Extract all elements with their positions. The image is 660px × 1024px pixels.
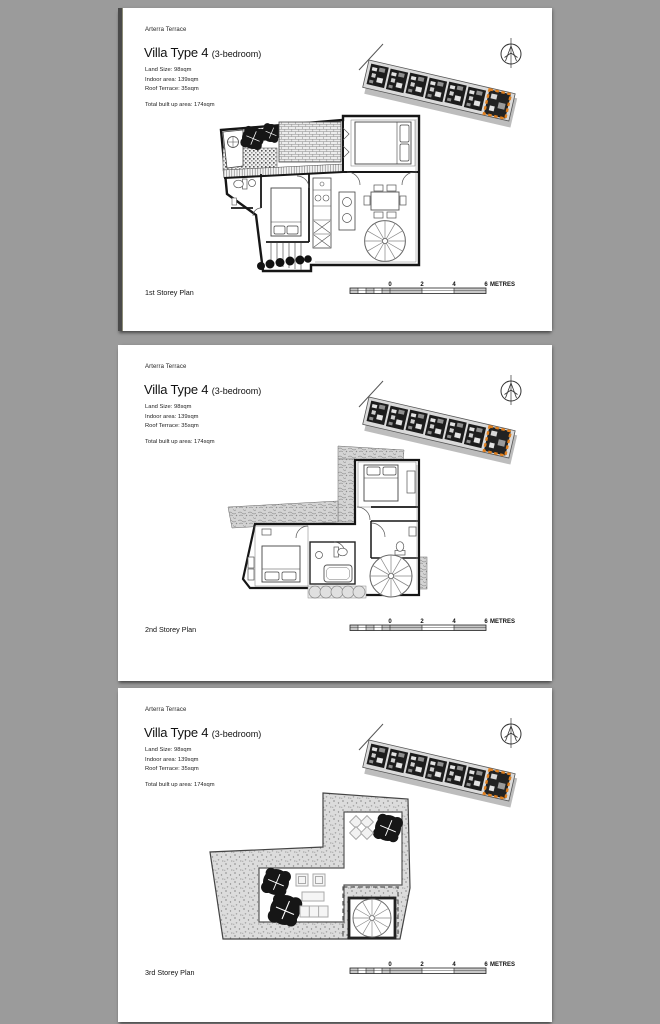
scale-unit: METRES <box>490 962 515 968</box>
wardrobe <box>248 569 254 580</box>
north-arrow-icon <box>501 718 521 748</box>
scale-segments <box>350 625 486 631</box>
project-name: Arterra Terrace <box>145 364 186 370</box>
page-title: Villa Type 4 (3-bedroom) <box>144 725 261 740</box>
floor-plan-2nd-storey <box>228 445 428 610</box>
wall-cabinet <box>262 529 271 535</box>
land-size: Land Size: 98sqm <box>145 66 199 76</box>
kitchen-counter <box>313 178 331 248</box>
document-viewer: Arterra Terrace Villa Type 4 (3-bedroom)… <box>0 0 660 1024</box>
brick-terrace <box>279 122 341 162</box>
roof-terrace: Roof Terrace: 35sqm <box>145 422 199 432</box>
basin <box>316 552 323 559</box>
bedroom-count: (3-bedroom) <box>212 386 262 396</box>
pillow <box>383 467 396 475</box>
land-size: Land Size: 98sqm <box>145 746 199 756</box>
scale-segments <box>350 968 486 974</box>
plan-page-2: Arterra Terrace Villa Type 4 (3-bedroom)… <box>118 345 552 681</box>
indoor-area: Indoor area: 139sqm <box>145 756 199 766</box>
wardrobe <box>248 557 254 568</box>
scale-tick-6: 6 <box>484 282 488 288</box>
plan-label: 3rd Storey Plan <box>145 968 195 977</box>
scale-bar: 0 2 4 6 METRES <box>346 616 518 634</box>
roof-terrace: Roof Terrace: 35sqm <box>145 765 199 775</box>
scale-bar: 0 2 4 6 METRES <box>346 959 518 977</box>
villa-type-title: Villa Type 4 <box>144 45 208 60</box>
indoor-area: Indoor area: 139sqm <box>145 413 199 423</box>
planter-pots <box>309 586 365 598</box>
total-area: Total built up area: 174sqm <box>145 102 215 108</box>
north-arrow-icon <box>501 38 521 68</box>
villa-type-title: Villa Type 4 <box>144 382 208 397</box>
land-size: Land Size: 98sqm <box>145 403 199 413</box>
hob <box>343 214 352 223</box>
scale-tick-2: 2 <box>420 962 424 968</box>
basin <box>409 527 416 536</box>
roof-terrace: Roof Terrace: 35sqm <box>145 85 199 95</box>
pillow <box>274 226 285 234</box>
pillow <box>367 467 380 475</box>
scale-tick-4: 4 <box>452 962 456 968</box>
pillow <box>265 572 279 580</box>
total-area: Total built up area: 174sqm <box>145 782 215 788</box>
scale-tick-6: 6 <box>484 619 488 625</box>
planter-box <box>223 130 243 168</box>
pillow <box>400 125 409 142</box>
scale-segments <box>350 288 486 294</box>
area-details: Land Size: 98sqm Indoor area: 139sqm Roo… <box>145 403 199 432</box>
page-title: Villa Type 4 (3-bedroom) <box>144 45 261 60</box>
pillow <box>400 144 409 161</box>
hob <box>343 198 352 207</box>
scale-unit: METRES <box>490 619 515 625</box>
spiral-staircase <box>353 899 391 937</box>
floor-plan-1st-storey <box>213 114 433 274</box>
villa-type-title: Villa Type 4 <box>144 725 208 740</box>
project-name: Arterra Terrace <box>145 27 186 33</box>
scale-tick-4: 4 <box>452 619 456 625</box>
scale-tick-0: 0 <box>388 962 392 968</box>
page-title: Villa Type 4 (3-bedroom) <box>144 382 261 397</box>
scale-tick-2: 2 <box>420 619 424 625</box>
scale-tick-2: 2 <box>420 282 424 288</box>
pillow <box>287 226 298 234</box>
desk <box>407 471 415 493</box>
stone-terrace <box>338 459 355 522</box>
total-area: Total built up area: 174sqm <box>145 439 215 445</box>
area-details: Land Size: 98sqm Indoor area: 139sqm Roo… <box>145 66 199 95</box>
pillow <box>282 572 296 580</box>
plan-page-1: Arterra Terrace Villa Type 4 (3-bedroom)… <box>118 8 552 331</box>
scale-tick-0: 0 <box>388 619 392 625</box>
area-details: Land Size: 98sqm Indoor area: 139sqm Roo… <box>145 746 199 775</box>
scale-tick-0: 0 <box>388 282 392 288</box>
basin <box>249 180 256 187</box>
site-plan-thumbnail <box>353 361 533 456</box>
scale-tick-4: 4 <box>452 282 456 288</box>
page-scan-edge <box>118 8 123 331</box>
bedroom-count: (3-bedroom) <box>212 49 262 59</box>
bedroom-count: (3-bedroom) <box>212 729 262 739</box>
plan-label: 2nd Storey Plan <box>145 625 196 634</box>
site-plan-thumbnail <box>353 24 533 119</box>
spiral-staircase <box>370 555 412 597</box>
plan-page-3: Arterra Terrace Villa Type 4 (3-bedroom)… <box>118 688 552 1022</box>
scale-tick-6: 6 <box>484 962 488 968</box>
indoor-area: Indoor area: 139sqm <box>145 76 199 86</box>
site-plan-thumbnail <box>353 704 533 799</box>
plan-label: 1st Storey Plan <box>145 288 194 297</box>
project-name: Arterra Terrace <box>145 707 186 713</box>
spiral-staircase <box>365 221 406 262</box>
scale-bar: 0 2 4 6 METRES <box>346 279 518 297</box>
floor-plan-3rd-storey <box>206 790 436 955</box>
scale-unit: METRES <box>490 282 515 288</box>
north-arrow-icon <box>501 375 521 405</box>
